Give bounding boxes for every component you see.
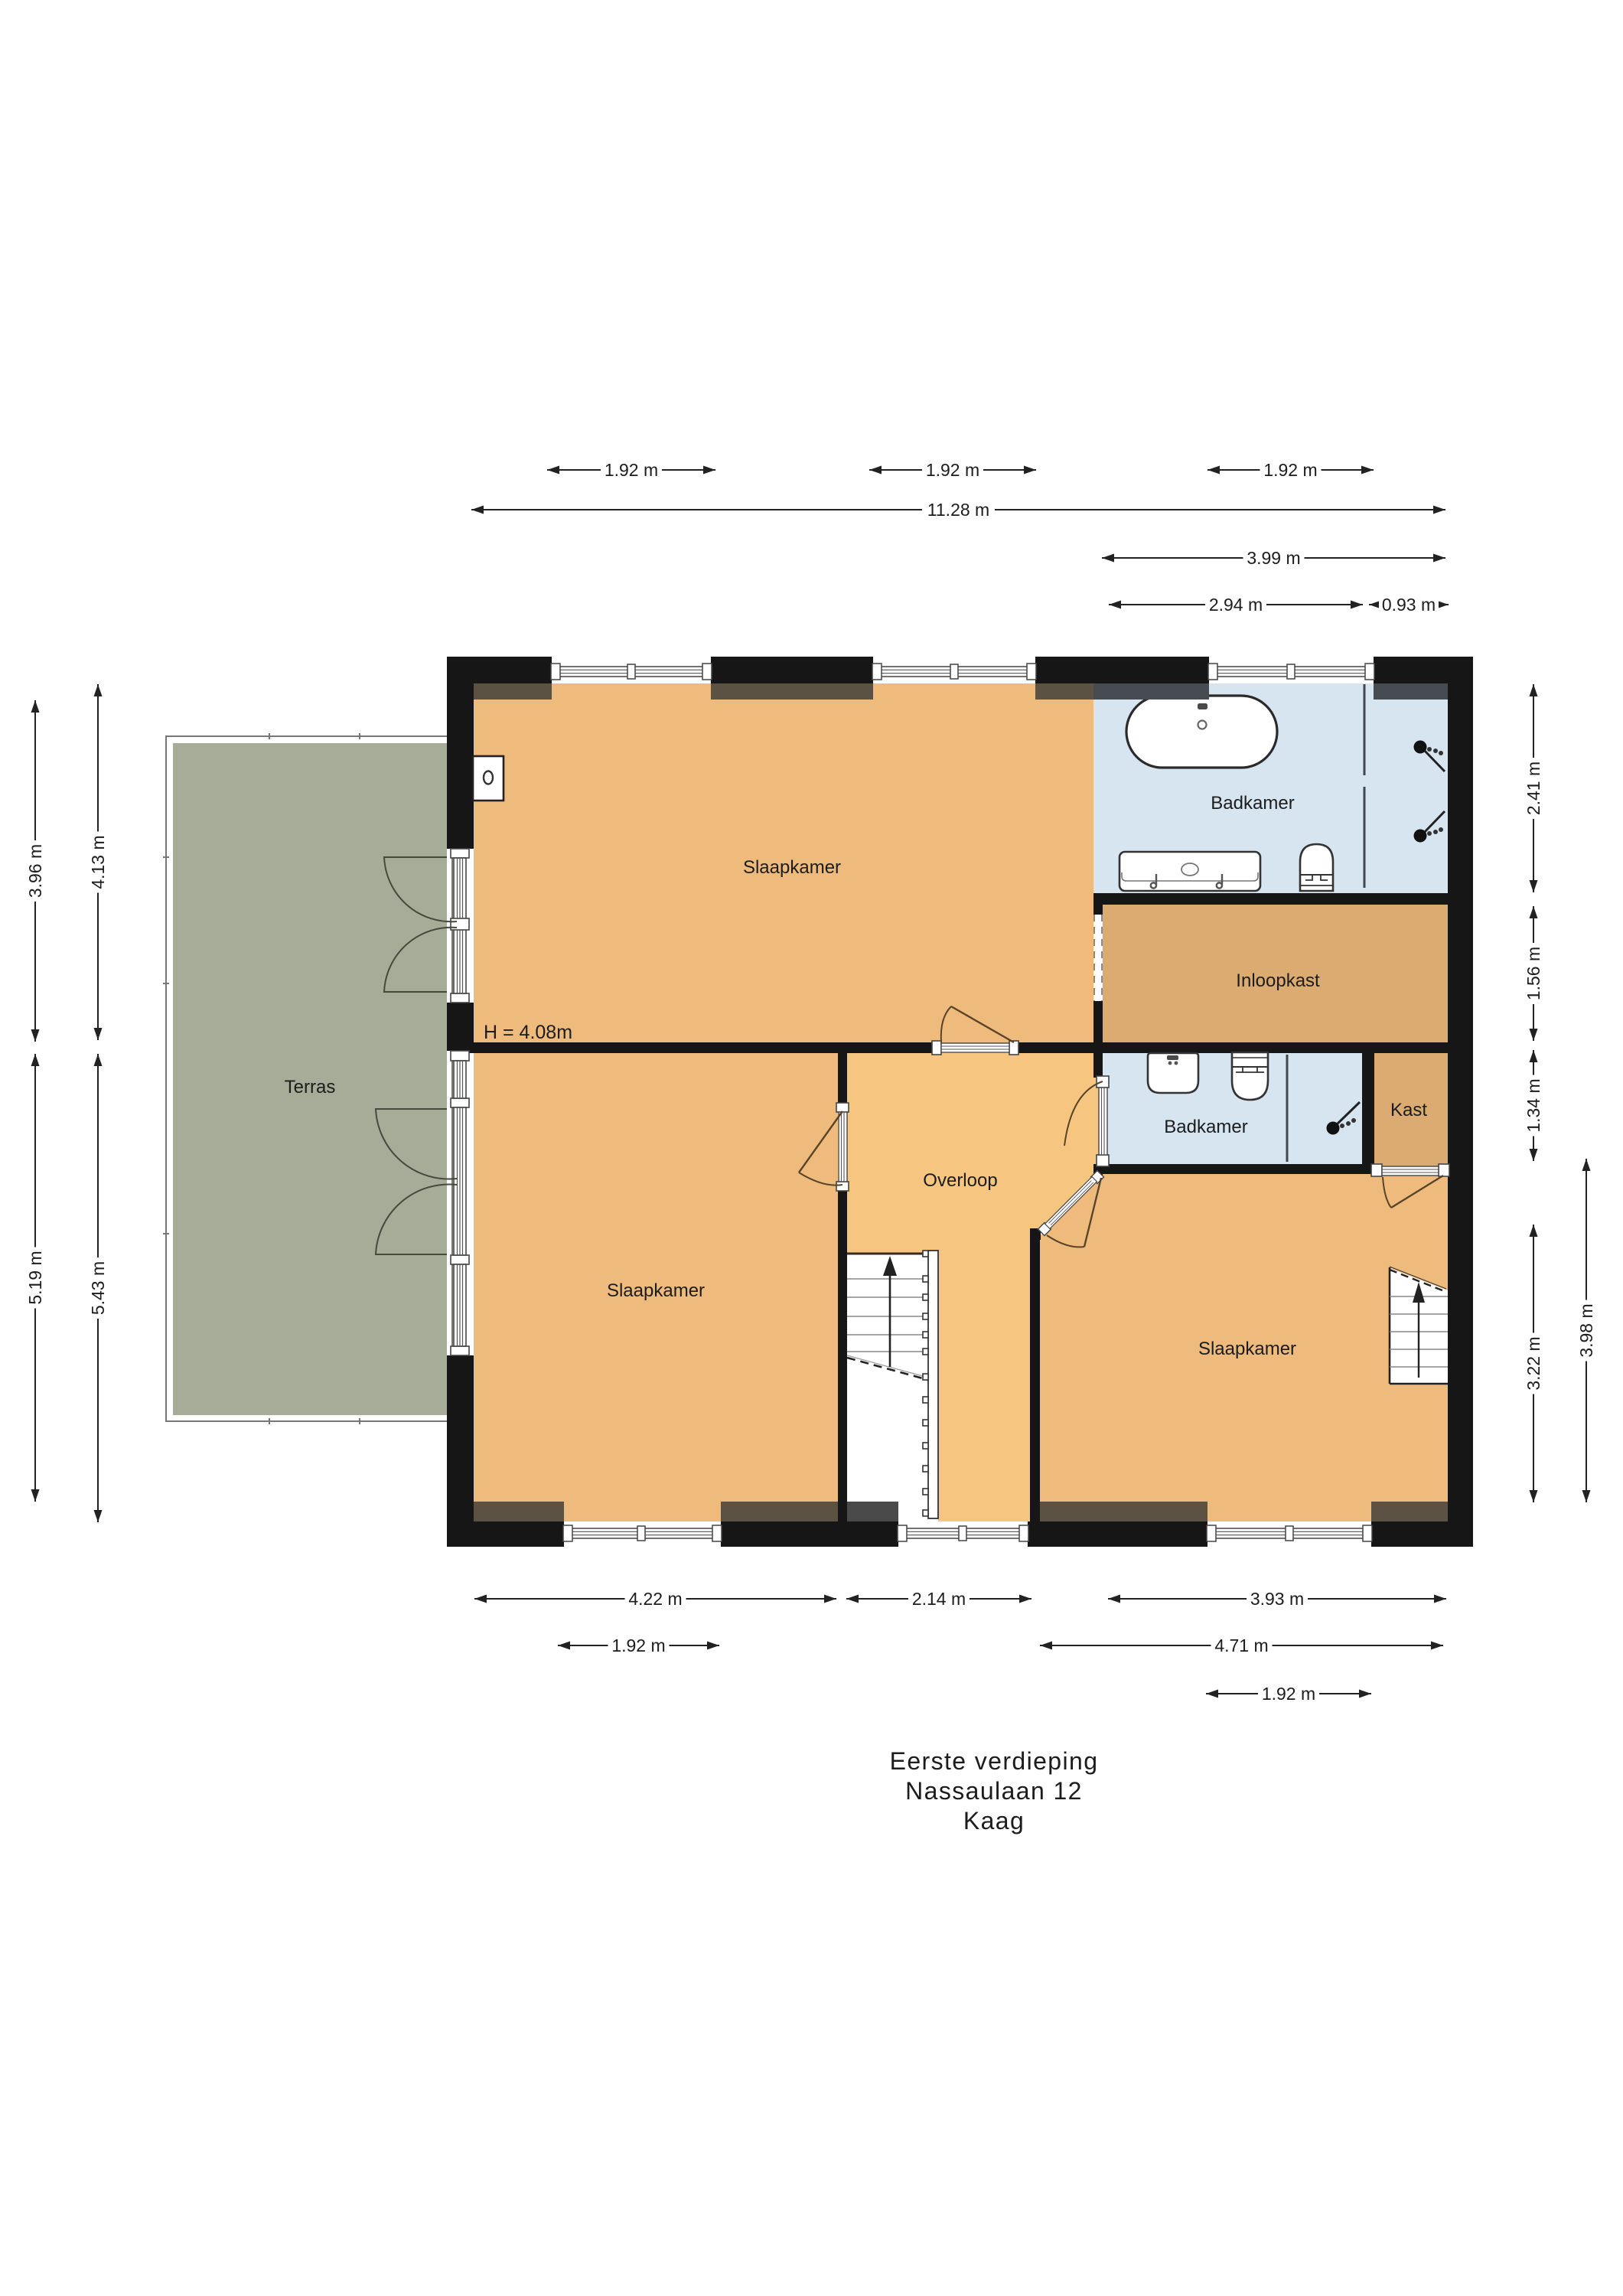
svg-text:Slaapkamer: Slaapkamer [607, 1280, 705, 1301]
svg-text:Kast: Kast [1390, 1100, 1427, 1120]
svg-text:1.92 m: 1.92 m [611, 1636, 665, 1655]
svg-text:4.22 m: 4.22 m [628, 1589, 682, 1609]
svg-text:Badkamer: Badkamer [1164, 1117, 1247, 1137]
svg-text:4.71 m: 4.71 m [1214, 1636, 1268, 1655]
svg-text:5.43 m: 5.43 m [88, 1261, 108, 1315]
svg-text:Terras: Terras [285, 1077, 336, 1097]
svg-text:3.93 m: 3.93 m [1250, 1589, 1304, 1609]
svg-text:Nassaulaan 12: Nassaulaan 12 [905, 1777, 1083, 1805]
svg-text:Badkamer: Badkamer [1211, 793, 1294, 814]
svg-text:Kaag: Kaag [963, 1807, 1025, 1835]
svg-text:Slaapkamer: Slaapkamer [743, 857, 841, 878]
svg-text:Inloopkast: Inloopkast [1236, 970, 1320, 991]
svg-text:2.94 m: 2.94 m [1209, 595, 1263, 615]
svg-text:2.14 m: 2.14 m [912, 1589, 966, 1609]
svg-text:1.92 m: 1.92 m [1263, 460, 1317, 480]
svg-text:0.93 m: 0.93 m [1382, 595, 1436, 615]
svg-text:Slaapkamer: Slaapkamer [1198, 1339, 1296, 1359]
svg-text:3.99 m: 3.99 m [1247, 548, 1300, 568]
svg-text:Overloop: Overloop [923, 1170, 997, 1191]
svg-text:1.92 m: 1.92 m [926, 460, 979, 480]
svg-text:1.34 m: 1.34 m [1524, 1078, 1543, 1132]
svg-text:1.92 m: 1.92 m [605, 460, 658, 480]
svg-text:3.22 m: 3.22 m [1524, 1336, 1543, 1390]
svg-text:1.56 m: 1.56 m [1524, 947, 1543, 1000]
svg-text:4.13 m: 4.13 m [88, 835, 108, 889]
svg-text:5.19 m: 5.19 m [25, 1251, 45, 1304]
svg-text:1.92 m: 1.92 m [1262, 1684, 1315, 1704]
svg-text:Eerste verdieping: Eerste verdieping [890, 1747, 1099, 1775]
svg-text:2.41 m: 2.41 m [1524, 762, 1543, 815]
svg-text:3.98 m: 3.98 m [1576, 1303, 1596, 1357]
svg-text:H = 4.08m: H = 4.08m [484, 1022, 572, 1043]
svg-text:11.28 m: 11.28 m [927, 500, 989, 520]
svg-text:3.96 m: 3.96 m [25, 844, 45, 898]
